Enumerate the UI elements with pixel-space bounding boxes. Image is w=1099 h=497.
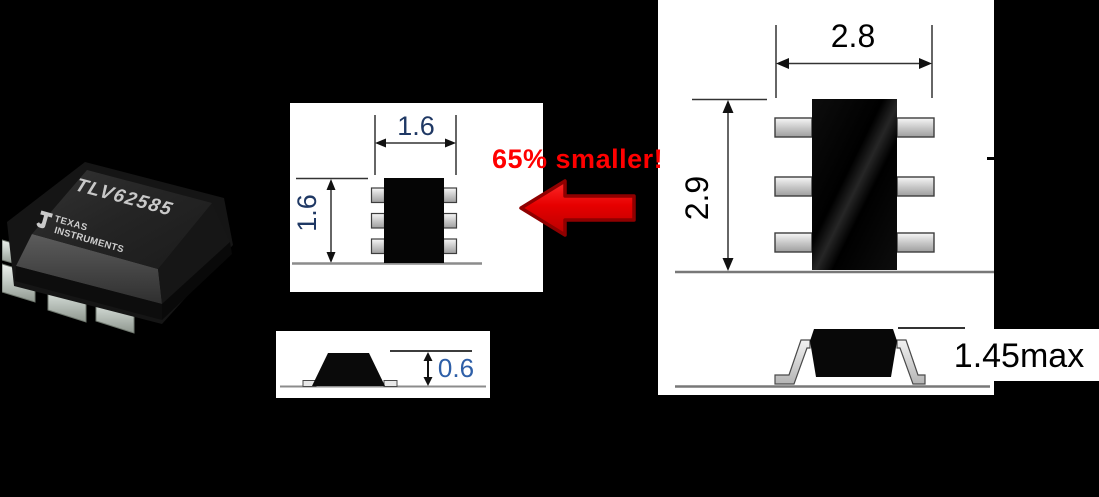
small-height-label: 1.6: [293, 181, 321, 245]
small-side-height-label: 0.6: [429, 355, 483, 382]
gull-wing-lead-left: [775, 340, 810, 384]
large-package-body: [812, 99, 897, 270]
callout-arrow: [516, 176, 638, 240]
arrow-left-icon: [521, 181, 634, 235]
large-height-label: 2.9: [681, 165, 713, 231]
large-width-label: 2.8: [820, 20, 886, 54]
arrowhead: [776, 58, 789, 69]
small-package-body: [384, 178, 444, 263]
slide-background: { "slide": { "background_color": "#00000…: [0, 0, 1099, 497]
arrowhead: [919, 58, 932, 69]
large-side-height-label: 1.45max: [945, 339, 1093, 375]
large-package-side-body: [810, 329, 897, 377]
arrowhead: [327, 179, 336, 190]
arrowhead: [723, 100, 734, 113]
chip-photo: TLV62585 TEXAS INSTRUMENTS: [2, 142, 248, 337]
gull-wing-lead-right: [897, 340, 925, 384]
callout-text: 65% smaller!: [492, 144, 663, 175]
arrowhead: [327, 252, 336, 263]
solder-pad: [384, 381, 397, 387]
small-width-label: 1.6: [384, 112, 448, 140]
small-package-side-body: [312, 353, 385, 386]
arrowhead: [723, 258, 734, 271]
